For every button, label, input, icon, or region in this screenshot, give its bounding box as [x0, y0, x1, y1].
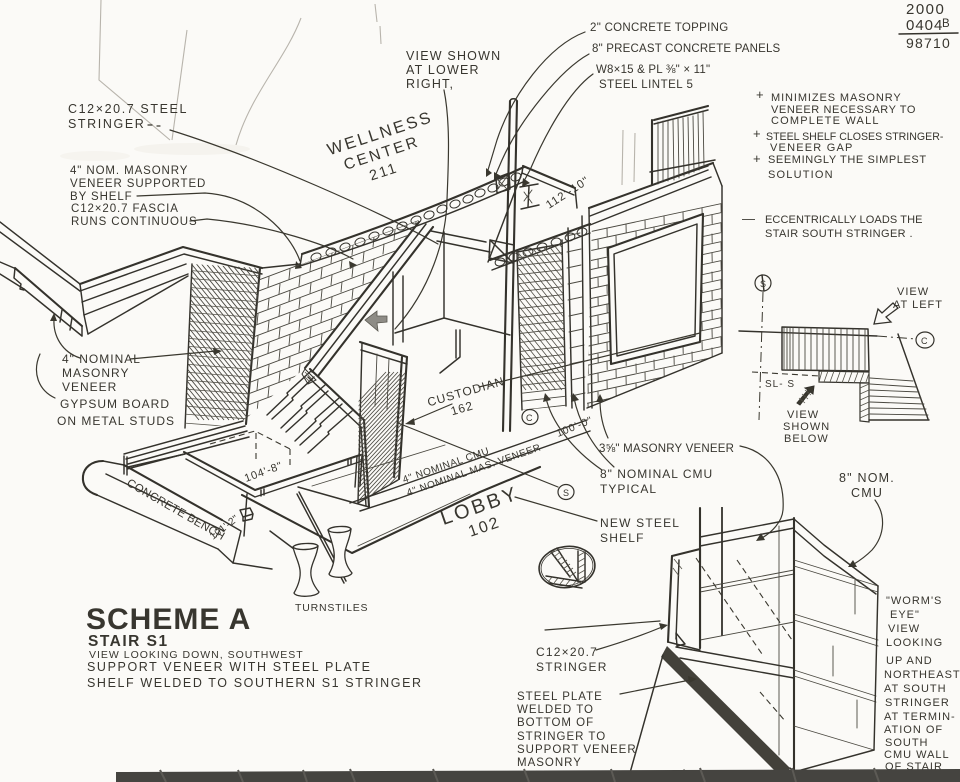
svg-text:VIEW: VIEW — [888, 623, 920, 635]
svg-text:VIEW: VIEW — [787, 409, 819, 421]
svg-text:C12×20.7: C12×20.7 — [536, 645, 598, 659]
svg-text:STRINGER TO: STRINGER TO — [517, 731, 606, 743]
svg-text:SHELF: SHELF — [600, 531, 645, 545]
svg-text:WELDED TO: WELDED TO — [517, 704, 594, 716]
svg-text:RIGHT,: RIGHT, — [406, 77, 454, 91]
svg-text:MASONRY: MASONRY — [517, 757, 582, 769]
svg-text:AT LOWER: AT LOWER — [406, 63, 480, 77]
svg-text:SHOWN: SHOWN — [783, 421, 830, 433]
svg-text:S: S — [563, 488, 569, 498]
svg-text:MASONRY: MASONRY — [62, 366, 129, 380]
svg-text:C: C — [526, 413, 533, 423]
svg-text:LOOKING: LOOKING — [886, 637, 943, 649]
svg-text:ECCENTRICALLY LOADS THE: ECCENTRICALLY LOADS THE — [765, 214, 923, 226]
svg-text:CMU: CMU — [851, 486, 883, 500]
svg-text:B: B — [942, 18, 950, 30]
svg-text:SEEMINGLY THE SIMPLEST: SEEMINGLY THE SIMPLEST — [768, 154, 927, 166]
svg-text:COMPLETE WALL: COMPLETE WALL — [771, 115, 880, 127]
svg-text:3⅝" MASONRY VENEER: 3⅝" MASONRY VENEER — [599, 443, 734, 455]
svg-text:SL- S: SL- S — [765, 379, 795, 390]
svg-text:2000: 2000 — [906, 1, 945, 18]
svg-text:4" NOM. MASONRY: 4" NOM. MASONRY — [70, 165, 188, 177]
svg-text:STAIR SOUTH STRINGER .: STAIR SOUTH STRINGER . — [765, 228, 913, 240]
svg-text:MINIMIZES MASONRY: MINIMIZES MASONRY — [771, 92, 902, 104]
svg-text:STEEL LINTEL 5: STEEL LINTEL 5 — [599, 79, 693, 91]
svg-text:SOUTH: SOUTH — [885, 737, 929, 749]
svg-text:ATION OF: ATION OF — [884, 724, 943, 736]
svg-text:AT SOUTH: AT SOUTH — [884, 683, 947, 695]
svg-text:+: + — [753, 126, 762, 141]
svg-text:STRINGER: STRINGER — [536, 660, 608, 674]
svg-text:C12×20.7 FASCIA: C12×20.7 FASCIA — [71, 203, 179, 215]
svg-text:+: + — [753, 151, 762, 166]
svg-text:VIEW: VIEW — [897, 286, 929, 298]
svg-text:RUNS CONTINUOUS: RUNS CONTINUOUS — [71, 216, 198, 228]
svg-text:EYE": EYE" — [890, 609, 920, 621]
svg-text:"WORM'S: "WORM'S — [886, 595, 942, 607]
svg-text:VENEER SUPPORTED: VENEER SUPPORTED — [70, 178, 206, 190]
svg-text:STAIR S1: STAIR S1 — [88, 633, 169, 650]
svg-text:C: C — [921, 336, 928, 346]
svg-text:C12×20.7 STEEL: C12×20.7 STEEL — [68, 102, 188, 116]
svg-text:—: — — [742, 211, 755, 226]
svg-text:2" CONCRETE TOPPING: 2" CONCRETE TOPPING — [590, 22, 728, 34]
svg-text:8" NOMINAL CMU: 8" NOMINAL CMU — [600, 467, 713, 481]
svg-text:SOLUTION: SOLUTION — [768, 169, 834, 181]
svg-text:BELOW: BELOW — [784, 433, 829, 445]
svg-text:8" NOM.: 8" NOM. — [839, 471, 895, 485]
svg-text:STRINGER: STRINGER — [885, 697, 950, 709]
svg-text:GYPSUM BOARD: GYPSUM BOARD — [60, 397, 170, 411]
svg-text:0404: 0404 — [906, 17, 943, 34]
svg-text:NEW STEEL: NEW STEEL — [600, 516, 680, 530]
svg-text:STRINGER: STRINGER — [68, 117, 145, 131]
svg-text:BOTTOM OF: BOTTOM OF — [517, 717, 594, 729]
svg-text:98710: 98710 — [906, 35, 951, 51]
svg-text:VIEW SHOWN: VIEW SHOWN — [406, 49, 501, 63]
svg-text:BY SHELF: BY SHELF — [70, 191, 133, 203]
svg-text:SUPPORT VENEER WITH STEEL PLAT: SUPPORT VENEER WITH STEEL PLATE — [87, 660, 372, 674]
svg-text:TYPICAL: TYPICAL — [600, 482, 657, 496]
svg-text:VENEER: VENEER — [62, 380, 117, 394]
svg-text:4" NOMINAL: 4" NOMINAL — [62, 352, 141, 366]
svg-text:UP AND: UP AND — [886, 655, 933, 667]
svg-text:TURNSTILES: TURNSTILES — [295, 602, 368, 614]
svg-text:STEEL PLATE: STEEL PLATE — [517, 691, 603, 703]
svg-text:+: + — [756, 87, 765, 102]
svg-text:SHELF WELDED TO SOUTHERN S1 ST: SHELF WELDED TO SOUTHERN S1 STRINGER — [87, 676, 423, 690]
svg-text:8" PRECAST CONCRETE PANELS: 8" PRECAST CONCRETE PANELS — [592, 43, 781, 55]
svg-text:CMU WALL: CMU WALL — [884, 749, 950, 761]
svg-text:NORTHEAST: NORTHEAST — [884, 669, 960, 681]
svg-text:SCHEME A: SCHEME A — [86, 603, 251, 636]
svg-text:W8×15 & PL ⅜" × 11": W8×15 & PL ⅜" × 11" — [596, 64, 710, 76]
svg-text:ON METAL STUDS: ON METAL STUDS — [57, 414, 175, 428]
svg-text:SUPPORT VENEER: SUPPORT VENEER — [517, 744, 637, 756]
svg-text:AT LEFT: AT LEFT — [893, 299, 943, 311]
svg-text:VENEER GAP: VENEER GAP — [770, 142, 854, 154]
svg-text:AT TERMIN-: AT TERMIN- — [884, 711, 956, 723]
